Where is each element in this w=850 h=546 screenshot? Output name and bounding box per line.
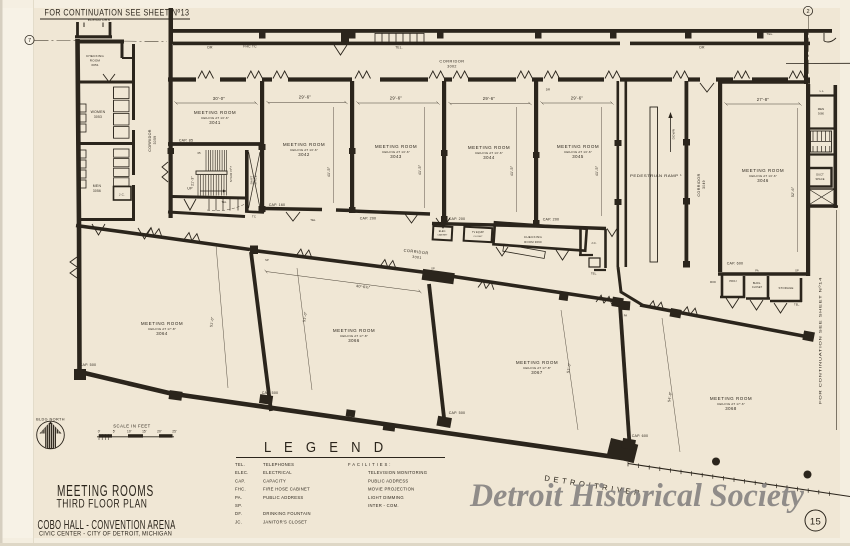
svg-text:PUBLIC ADDRESS: PUBLIC ADDRESS bbox=[263, 495, 304, 500]
svg-text:TV EQUIP: TV EQUIP bbox=[472, 231, 484, 234]
svg-text:TEL.: TEL. bbox=[591, 272, 597, 276]
svg-text:20′: 20′ bbox=[157, 430, 162, 434]
svg-text:CLOSET: CLOSET bbox=[752, 286, 763, 289]
svg-text:27′-8″: 27′-8″ bbox=[757, 97, 770, 102]
svg-text:CEILING AT 13′-6″: CEILING AT 13′-6″ bbox=[475, 151, 503, 155]
svg-text:41′-5″: 41′-5″ bbox=[418, 164, 422, 175]
svg-text:7: 7 bbox=[28, 38, 31, 44]
svg-text:CAP. 160: CAP. 160 bbox=[269, 203, 286, 207]
svg-text:SHAFT: SHAFT bbox=[250, 175, 254, 184]
svg-text:CEILING AT 13′-6″: CEILING AT 13′-6″ bbox=[290, 148, 318, 152]
svg-text:3080: 3080 bbox=[818, 112, 825, 116]
svg-text:10′: 10′ bbox=[127, 430, 132, 434]
svg-text:CORRIDOR: CORRIDOR bbox=[148, 129, 152, 152]
svg-text:THIRD FLOOR PLAN: THIRD FLOOR PLAN bbox=[57, 497, 148, 511]
svg-text:3041: 3041 bbox=[209, 120, 221, 125]
svg-text:TEL.: TEL. bbox=[766, 32, 773, 36]
svg-text:SP: SP bbox=[265, 258, 269, 262]
svg-text:MEETING ROOM: MEETING ROOM bbox=[194, 110, 236, 115]
svg-text:3042: 3042 bbox=[298, 152, 310, 157]
svg-text:J.C.: J.C. bbox=[591, 241, 597, 245]
svg-text:MEETING ROOM: MEETING ROOM bbox=[283, 142, 325, 147]
svg-text:41′-5″: 41′-5″ bbox=[595, 165, 599, 176]
svg-text:30′-0″: 30′-0″ bbox=[213, 96, 226, 101]
svg-text:29′-6″: 29′-6″ bbox=[390, 96, 403, 101]
svg-text:L.L.: L.L. bbox=[820, 89, 825, 93]
svg-text:DUCT: DUCT bbox=[816, 173, 824, 177]
svg-text:FHC TC: FHC TC bbox=[243, 45, 257, 49]
svg-text:SP.: SP. bbox=[235, 503, 242, 508]
svg-text:FOR CONTINUATION SEE SHEET: FOR CONTINUATION SEE SHEET Nº13 bbox=[45, 8, 190, 18]
svg-text:FIRE HOSE CABINET: FIRE HOSE CABINET bbox=[263, 487, 310, 492]
svg-text:ROOM 3060: ROOM 3060 bbox=[524, 240, 542, 244]
svg-text:TEL.: TEL. bbox=[235, 462, 245, 467]
svg-text:21′-3″: 21′-3″ bbox=[191, 175, 195, 185]
svg-text:29′-6″: 29′-6″ bbox=[483, 96, 496, 101]
svg-text:29′-6″: 29′-6″ bbox=[299, 95, 312, 100]
svg-text:MEETING ROOM: MEETING ROOM bbox=[375, 144, 417, 149]
svg-text:5′: 5′ bbox=[113, 430, 116, 434]
svg-text:52′-6″: 52′-6″ bbox=[791, 186, 795, 197]
svg-text:CAP. 500: CAP. 500 bbox=[80, 363, 97, 367]
svg-text:MEETING ROOM: MEETING ROOM bbox=[141, 321, 183, 326]
svg-text:DF.: DF. bbox=[235, 511, 242, 516]
svg-text:3002: 3002 bbox=[447, 65, 457, 69]
svg-text:MEETING ROOM: MEETING ROOM bbox=[710, 396, 752, 401]
svg-text:MOVIE PROJECTION: MOVIE PROJECTION bbox=[368, 487, 414, 492]
svg-text:15′: 15′ bbox=[142, 430, 147, 434]
svg-text:SCALE IN FEET: SCALE IN FEET bbox=[113, 424, 150, 429]
svg-text:ELECTRICAL: ELECTRICAL bbox=[263, 470, 292, 475]
svg-text:CIVIC CENTER - CITY OF DETR: CIVIC CENTER - CITY OF DETROIT, MICHIGAN bbox=[39, 531, 172, 538]
svg-text:41′-5″: 41′-5″ bbox=[327, 166, 331, 177]
svg-text:PUBLIC ADDRESS: PUBLIC ADDRESS bbox=[368, 478, 409, 483]
svg-text:29′-6″: 29′-6″ bbox=[571, 96, 584, 101]
svg-text:3066: 3066 bbox=[348, 338, 360, 343]
svg-text:SPACE: SPACE bbox=[815, 177, 824, 181]
svg-text:CAP. 600: CAP. 600 bbox=[632, 434, 649, 438]
svg-text:DR: DR bbox=[546, 88, 551, 92]
svg-text:CAP. 500: CAP. 500 bbox=[262, 391, 279, 395]
svg-text:PA: PA bbox=[624, 314, 628, 318]
svg-text:CEILING AT 17′-8″: CEILING AT 17′-8″ bbox=[523, 366, 551, 370]
svg-text:ELEC.: ELEC. bbox=[235, 470, 249, 475]
svg-text:STORAGE: STORAGE bbox=[778, 286, 793, 290]
svg-text:CAP. 500: CAP. 500 bbox=[449, 411, 466, 415]
svg-text:CAP. 85: CAP. 85 bbox=[179, 139, 193, 143]
svg-text:CORRIDOR: CORRIDOR bbox=[439, 59, 464, 64]
svg-text:UP: UP bbox=[187, 187, 193, 191]
svg-text:DR: DR bbox=[207, 46, 213, 50]
svg-text:41′-5″: 41′-5″ bbox=[510, 165, 514, 176]
svg-text:0′: 0′ bbox=[98, 430, 101, 434]
svg-text:CEILING AT 13′-6″: CEILING AT 13′-6″ bbox=[382, 150, 410, 154]
svg-text:35: 35 bbox=[197, 151, 201, 155]
svg-text:F A C I L I T I E S :: F A C I L I T I E S : bbox=[348, 462, 391, 467]
svg-text:3059: 3059 bbox=[153, 136, 157, 145]
svg-text:MEETING ROOM: MEETING ROOM bbox=[333, 328, 375, 333]
svg-text:LIGHT DIMMING: LIGHT DIMMING bbox=[368, 495, 404, 500]
svg-text:CAP. 200: CAP. 200 bbox=[449, 217, 466, 221]
svg-text:TELEVISION MONITORING: TELEVISION MONITORING bbox=[368, 470, 427, 475]
svg-text:J.C.: J.C. bbox=[119, 193, 125, 197]
svg-text:L E G E N D: L E G E N D bbox=[264, 439, 388, 456]
svg-text:CAP. 200: CAP. 200 bbox=[360, 217, 377, 221]
svg-text:CHECKING: CHECKING bbox=[86, 54, 104, 58]
svg-text:3051: 3051 bbox=[91, 63, 99, 67]
svg-text:DR: DR bbox=[699, 46, 705, 50]
svg-text:ELEC.: ELEC. bbox=[439, 230, 447, 233]
svg-text:CAPACITY: CAPACITY bbox=[263, 478, 286, 483]
svg-text:PROJ: PROJ bbox=[729, 279, 737, 283]
svg-text:MEN: MEN bbox=[93, 184, 102, 188]
svg-text:2: 2 bbox=[806, 9, 809, 15]
svg-text:PA: PA bbox=[450, 278, 454, 282]
svg-text:FOR CONTINUATION SEE SHEET: FOR CONTINUATION SEE SHEET Nº14 bbox=[819, 277, 823, 404]
svg-text:3056: 3056 bbox=[93, 189, 101, 193]
svg-text:JC.: JC. bbox=[235, 519, 242, 524]
svg-text:FHC.: FHC. bbox=[235, 487, 246, 492]
svg-text:ROOM: ROOM bbox=[90, 59, 101, 63]
svg-text:TC: TC bbox=[252, 215, 256, 219]
svg-text:STAIR Nº7: STAIR Nº7 bbox=[229, 166, 233, 182]
svg-text:MEETING ROOM: MEETING ROOM bbox=[742, 168, 784, 173]
svg-text:DRINKING FOUNTAIN: DRINKING FOUNTAIN bbox=[263, 511, 311, 516]
svg-text:CAP.: CAP. bbox=[235, 478, 245, 483]
svg-text:MEETING ROOM: MEETING ROOM bbox=[468, 145, 510, 150]
svg-text:25′: 25′ bbox=[172, 430, 177, 434]
svg-text:CAP. 200: CAP. 200 bbox=[543, 218, 560, 222]
svg-text:SPACE: SPACE bbox=[254, 175, 258, 184]
svg-text:PA: PA bbox=[755, 269, 759, 273]
svg-text:3045: 3045 bbox=[572, 154, 584, 159]
svg-text:CEILING AT 13′-6″: CEILING AT 13′-6″ bbox=[564, 150, 592, 154]
svg-text:DOWN: DOWN bbox=[672, 129, 676, 140]
svg-text:CEILING AT 17′-6″: CEILING AT 17′-6″ bbox=[717, 402, 745, 406]
svg-text:CHECKING: CHECKING bbox=[524, 235, 543, 239]
svg-text:CEILING AT 13′-6″: CEILING AT 13′-6″ bbox=[749, 174, 777, 178]
svg-text:MEETING ROOM: MEETING ROOM bbox=[516, 360, 558, 365]
svg-text:SP: SP bbox=[431, 267, 435, 271]
svg-text:TEL: TEL bbox=[310, 218, 316, 222]
svg-text:MOD: MOD bbox=[710, 281, 716, 284]
svg-text:CEILING AT 17′-8″: CEILING AT 17′-8″ bbox=[340, 334, 368, 338]
svg-text:SP: SP bbox=[795, 269, 799, 273]
svg-text:CORRIDOR: CORRIDOR bbox=[697, 173, 701, 196]
svg-text:TEL.: TEL. bbox=[794, 303, 800, 307]
svg-text:INTER - COM.: INTER - COM. bbox=[368, 503, 399, 508]
svg-text:TELEPHONES: TELEPHONES bbox=[263, 462, 294, 467]
svg-text:CLOSET: CLOSET bbox=[473, 236, 483, 238]
svg-text:CEILING AT 13′-6″: CEILING AT 13′-6″ bbox=[201, 116, 229, 120]
svg-text:3043: 3043 bbox=[390, 154, 402, 159]
svg-text:WOMEN: WOMEN bbox=[91, 110, 106, 114]
svg-text:3068: 3068 bbox=[725, 406, 737, 411]
svg-text:CAP. 600: CAP. 600 bbox=[727, 262, 744, 266]
svg-text:15: 15 bbox=[810, 517, 821, 528]
svg-text:3064: 3064 bbox=[156, 331, 168, 336]
svg-text:JANITOR'S CLOSET: JANITOR'S CLOSET bbox=[263, 519, 307, 524]
svg-text:PEDESTRIAN RAMP ¹: PEDESTRIAN RAMP ¹ bbox=[630, 174, 682, 178]
svg-text:MEETING ROOM: MEETING ROOM bbox=[557, 144, 599, 149]
svg-text:3053: 3053 bbox=[94, 115, 102, 119]
svg-text:BLDG.: BLDG. bbox=[753, 281, 761, 285]
svg-text:CEILING AT 17′-8″: CEILING AT 17′-8″ bbox=[148, 327, 176, 331]
svg-text:TEL.: TEL. bbox=[395, 46, 403, 50]
svg-text:3049: 3049 bbox=[702, 180, 706, 189]
svg-text:PA.: PA. bbox=[235, 495, 242, 500]
svg-text:3046: 3046 bbox=[757, 178, 769, 183]
svg-text:MEN: MEN bbox=[818, 107, 825, 111]
svg-text:TEL: TEL bbox=[221, 200, 227, 204]
svg-text:ELEVATORS: ELEVATORS bbox=[88, 18, 111, 22]
svg-text:3067: 3067 bbox=[531, 370, 543, 375]
svg-text:Detroit Historical Society: Detroit Historical Society bbox=[469, 478, 805, 514]
svg-text:CABINET: CABINET bbox=[437, 234, 448, 237]
svg-text:3044: 3044 bbox=[483, 155, 495, 160]
